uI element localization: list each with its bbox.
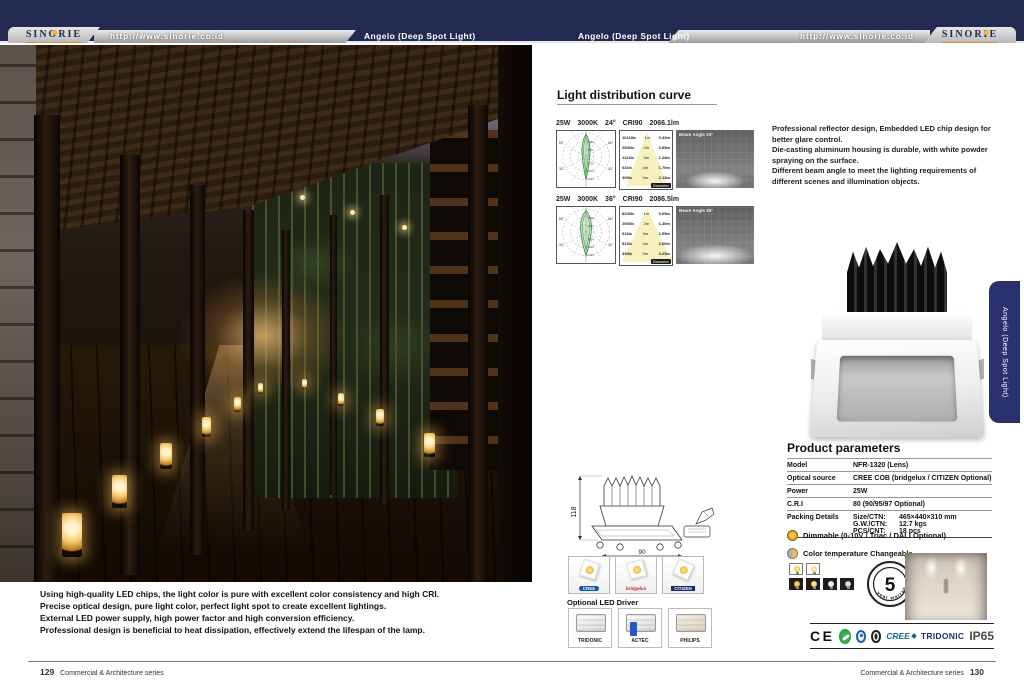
photo-column [468, 105, 488, 582]
cone-lux: 2060lx [622, 221, 634, 226]
warranty-number: 5 [885, 575, 896, 596]
architectural-photo [0, 45, 532, 582]
led-chip-icon [672, 558, 694, 580]
param-row: Optical source CREE COB (bridgelux / CIT… [787, 471, 992, 484]
ce-mark: CE [810, 628, 834, 644]
spec-cri: CRI90 [623, 120, 643, 127]
param-value: CREE COB (bridgelux / CITIZEN Optional) [853, 475, 992, 482]
photo-column [120, 155, 140, 575]
photo-ceiling-light [350, 210, 355, 215]
polar-scale: 2596 [587, 224, 594, 228]
intro-line: Die-casting aluminum housing is durable,… [772, 145, 992, 166]
cone-dist: 5m [643, 175, 649, 180]
param-row: Model NFR-1320 (Lens) [787, 458, 992, 471]
feature-dimmable: Dimmable (0-10V / Triac / DALI Optional) [787, 530, 946, 541]
photo-ceiling-light [300, 195, 305, 200]
cone-footer-tag: Diameter [651, 183, 671, 188]
intro-line: Different beam angle to meet the lightin… [772, 166, 992, 187]
cone-dia: 0.65m [659, 211, 670, 216]
param-row: C.R.I 80 (90/95/97 Optional) [787, 497, 992, 510]
param-label: Power [787, 488, 853, 495]
chip-brand-label: CITIZEN [671, 586, 695, 591]
logo-tagline-mark [942, 42, 997, 44]
spec-cct: 3000K [577, 196, 598, 203]
spec-power: 25W [556, 120, 570, 127]
spec-power: 25W [556, 196, 570, 203]
curve-section-title: Light distribution curve [557, 88, 691, 102]
beam-label: Beam Angle 24° [679, 132, 713, 137]
feature-label: Dimmable (0-10V / Triac / DALI Optional) [803, 531, 946, 540]
polar-scale: 5192 [587, 245, 594, 249]
application-photo [905, 553, 987, 620]
cct-swatches-top [789, 563, 820, 575]
led-chip-icon [579, 559, 600, 580]
cone-dist: 3m [643, 231, 649, 236]
angle-label: 30° [608, 167, 614, 171]
photo-lantern [202, 417, 211, 437]
product-parameters: Product parameters Model NFR-1320 (Lens)… [787, 441, 992, 538]
spec-line: 25W 3000K 36° CRI90 2086.5lm [556, 196, 791, 203]
polar-scale: 1298 [587, 216, 594, 220]
cone-lux: 405lx [622, 175, 632, 180]
chip-brand-label: CREE [579, 586, 600, 591]
cone-footer-tag: Diameter [651, 259, 671, 264]
chip-card-citizen: CITIZEN [662, 556, 704, 594]
cone-lux: 632lx [622, 165, 632, 170]
description-line: Professional design is beneficial to hea… [40, 624, 490, 636]
cone-lux: 1124lx [622, 155, 634, 160]
cone-dist: 1m [644, 211, 650, 216]
cree-logo: CREE [886, 631, 916, 641]
led-chip-icon [626, 559, 647, 580]
chip-card-bridgelux: bridgelux [615, 556, 657, 594]
driver-card-philips: PHILIPS [668, 608, 712, 648]
photo-lantern [160, 443, 172, 469]
driver-options: TRIDONIC ACTEC PHILIPS [568, 608, 712, 648]
photo-lantern [376, 409, 384, 426]
curve-section-rule [557, 104, 717, 105]
side-tab-label: Angelo (Deep Spot Light) [1001, 307, 1008, 398]
drivers-title: Optional LED Driver [567, 598, 638, 607]
photo-lantern [302, 379, 307, 389]
packing-sublabel: G.W./CTN: [853, 521, 899, 528]
polar-scale: 5704 [587, 169, 594, 173]
cone-dist: 4m [643, 241, 649, 246]
packing-subvalue: 465×440×310 mm [899, 514, 957, 521]
room-figure [944, 579, 948, 593]
driver-image [676, 614, 706, 632]
angle-label: 60° [559, 141, 565, 145]
driver-image [576, 614, 606, 632]
heatsink-fins [847, 242, 947, 322]
rohs-icon [839, 629, 850, 644]
cone-dist: 4m [643, 165, 649, 170]
angle-label: 60° [559, 217, 565, 221]
driver-image [626, 614, 656, 632]
chip-card-cree: CREE [568, 556, 610, 594]
product-photo [815, 240, 980, 435]
photo-ceiling-light [402, 225, 407, 230]
cert-emblem-icon [871, 630, 881, 643]
sun-icon [984, 30, 989, 35]
beam-label: Beam Angle 36° [679, 208, 713, 213]
footer-rule [28, 661, 996, 662]
dimmable-icon [787, 530, 798, 541]
spec-flux: 2066.1lm [649, 120, 679, 127]
header-bar: http://www.sinorie.co.id http://www.sino… [0, 0, 1024, 43]
intro-paragraph: Professional reflector design, Embedded … [772, 124, 992, 187]
description-line: Precise optical design, pure light color… [40, 600, 490, 612]
cone-lux: 2530lx [622, 145, 634, 150]
sun-icon [52, 30, 57, 35]
cone-lux: 916lx [622, 231, 632, 236]
brand-logo-right: SINORIE [924, 27, 1016, 43]
cone-lux: 10118lx [622, 135, 636, 140]
chip-brand-label: bridgelux [626, 586, 646, 591]
lamp-swatch-icon [840, 578, 854, 590]
left-description: Using high-quality LED chips, the light … [40, 588, 490, 636]
polar-scale: 7130 [587, 177, 594, 181]
photo-column [330, 215, 337, 495]
cert-seal-icon [856, 630, 867, 643]
cone-dist: 3m [644, 155, 650, 160]
polar-scale: 1426 [587, 140, 594, 144]
cone-dia: 3.25m [659, 251, 670, 256]
polar-diagram: 60° 60° 30° 30° 1426 2852 4278 5704 7130 [556, 130, 616, 188]
cone-dia: 0.85m [659, 145, 670, 150]
polar-scale: 2852 [587, 148, 594, 152]
param-label: Model [787, 462, 853, 469]
cone-dist: 1m [645, 135, 651, 140]
series-label-left: Commercial & Architecture series [60, 670, 163, 677]
distribution-row-24: 25W 3000K 24° CRI90 2066.1lm 60° 60° 30° [556, 120, 791, 190]
ip-rating: IP65 [969, 629, 994, 643]
logo-tagline-mark [26, 42, 81, 44]
tridonic-logo: TRIDONIC [921, 631, 964, 641]
intro-line: Professional reflector design, Embedded … [772, 124, 992, 145]
header-product-left: Angelo (Deep Spot Light) [364, 31, 476, 41]
cone-lux: 330lx [622, 251, 632, 256]
brand-logo-left: SINORIE [8, 27, 100, 43]
angle-label: 30° [608, 243, 614, 247]
param-row: Power 25W [787, 484, 992, 497]
lamp-swatch-icon [789, 578, 803, 590]
spec-flux: 2086.5lm [649, 196, 679, 203]
photo-column [190, 185, 205, 555]
photo-column [243, 210, 254, 530]
angle-label: 60° [608, 217, 614, 221]
driver-card-tridonic: TRIDONIC [568, 608, 612, 648]
lamp-swatch-icon [823, 578, 837, 590]
cone-dia: 2.13m [659, 175, 670, 180]
parameters-title: Product parameters [787, 441, 992, 458]
param-label: Optical source [787, 475, 853, 482]
distribution-row-36: 25W 3000K 36° CRI90 2086.5lm 60° 60° 30° [556, 196, 791, 266]
polar-diagram: 60° 60° 30° 30° 1298 2596 3894 5192 6490 [556, 206, 616, 264]
feature-cct: Color temperature Changeable [787, 548, 913, 559]
side-tab-angelo[interactable]: Angelo (Deep Spot Light) [989, 281, 1020, 423]
spec-cri: CRI90 [623, 196, 643, 203]
param-label: C.R.I [787, 501, 853, 508]
photo-lantern [112, 475, 127, 508]
driver-label: TRIDONIC [569, 638, 611, 644]
site-url-right: http://www.sinorie.co.id [800, 32, 914, 41]
spec-cct: 3000K [577, 120, 598, 127]
driver-label: ACTEC [619, 638, 661, 644]
series-label-right: Commercial & Architecture series [860, 670, 963, 677]
height-dimension: 118 [571, 506, 578, 517]
spec-angle: 36° [605, 196, 616, 203]
photo-lantern [62, 513, 82, 557]
url-strip-right: http://www.sinorie.co.id [668, 30, 930, 43]
cone-dia: 1.70m [659, 165, 670, 170]
description-line: Using high-quality LED chips, the light … [40, 588, 490, 600]
photo-lantern [338, 393, 344, 406]
cct-icon [787, 548, 798, 559]
dimension-drawing: 118 90 [568, 468, 718, 563]
header-product-right: Angelo (Deep Spot Light) [578, 31, 690, 41]
driver-label: PHILIPS [669, 638, 711, 644]
url-strip-left: http://www.sinorie.co.id [94, 30, 356, 43]
product-bezel [810, 340, 985, 438]
cone-dia: 1.28m [659, 155, 670, 160]
photo-column [282, 230, 290, 510]
cone-lux: 8240lx [622, 211, 634, 216]
photo-stone-wall [0, 45, 36, 582]
chip-options: CREE bridgelux CITIZEN [568, 556, 704, 594]
photo-lantern [258, 383, 263, 394]
cct-swatches-bottom [789, 578, 854, 590]
feature-label: Color temperature Changeable [803, 549, 913, 558]
polar-scale: 6490 [587, 253, 594, 257]
photo-column [380, 195, 389, 505]
photo-lantern [234, 397, 241, 412]
packing-subvalue: 12.7 kgs [899, 521, 927, 528]
polar-scale: 4278 [587, 161, 594, 165]
cone-dia: 2.60m [659, 241, 670, 246]
catalog-spread: http://www.sinorie.co.id http://www.sino… [0, 0, 1024, 700]
angle-label: 60° [608, 141, 614, 145]
param-value: 25W [853, 488, 992, 495]
cone-diagram: 8240lx1m0.65m 2060lx2m1.30m 916lx3m1.95m… [619, 206, 673, 266]
cone-dist: 2m [644, 145, 650, 150]
width-dimension: 90 [638, 549, 646, 556]
spec-line: 25W 3000K 24° CRI90 2066.1lm [556, 120, 791, 127]
angle-label: 30° [559, 167, 565, 171]
certifications-bar: CE CREE TRIDONIC IP65 [810, 623, 994, 649]
cone-dist: 5m [643, 251, 649, 256]
page-number-right: 130 [970, 667, 984, 677]
site-url-left: http://www.sinorie.co.id [110, 32, 224, 41]
packing-sublabel: Size/CTN: [853, 514, 899, 521]
cone-lux: 515lx [622, 241, 632, 246]
page-number-left: 129 [40, 667, 54, 677]
polar-scale: 3894 [587, 237, 594, 241]
angle-label: 30° [559, 243, 565, 247]
driver-card-actec: ACTEC [618, 608, 662, 648]
photo-foreground-column [498, 45, 532, 582]
brand-name: SINORIE [924, 29, 1016, 40]
cone-dist: 2m [644, 221, 650, 226]
photo-column [34, 115, 60, 582]
footer-left: 129 Commercial & Architecture series [36, 667, 164, 677]
cone-dia: 0.43m [659, 135, 670, 140]
cone-dia: 1.95m [659, 231, 670, 236]
cone-diagram: 10118lx1m0.43m 2530lx2m0.85m 1124lx3m1.2… [619, 130, 673, 190]
cone-dia: 1.30m [659, 221, 670, 226]
lamp-swatch-icon [789, 563, 803, 575]
lamp-swatch-icon [806, 578, 820, 590]
spec-angle: 24° [605, 120, 616, 127]
beam-photo-36: Beam Angle 36° [676, 206, 754, 264]
beam-photo-24: Beam Angle 24° [676, 130, 754, 188]
lamp-swatch-icon [806, 563, 820, 575]
description-line: External LED power supply, high power fa… [40, 612, 490, 624]
product-recess [837, 356, 958, 422]
footer-right: Commercial & Architecture series 130 [860, 667, 988, 677]
photo-lantern [424, 433, 435, 457]
param-value: 80 (90/95/97 Optional) [853, 501, 992, 508]
param-value: NFR-1320 (Lens) [853, 462, 992, 469]
